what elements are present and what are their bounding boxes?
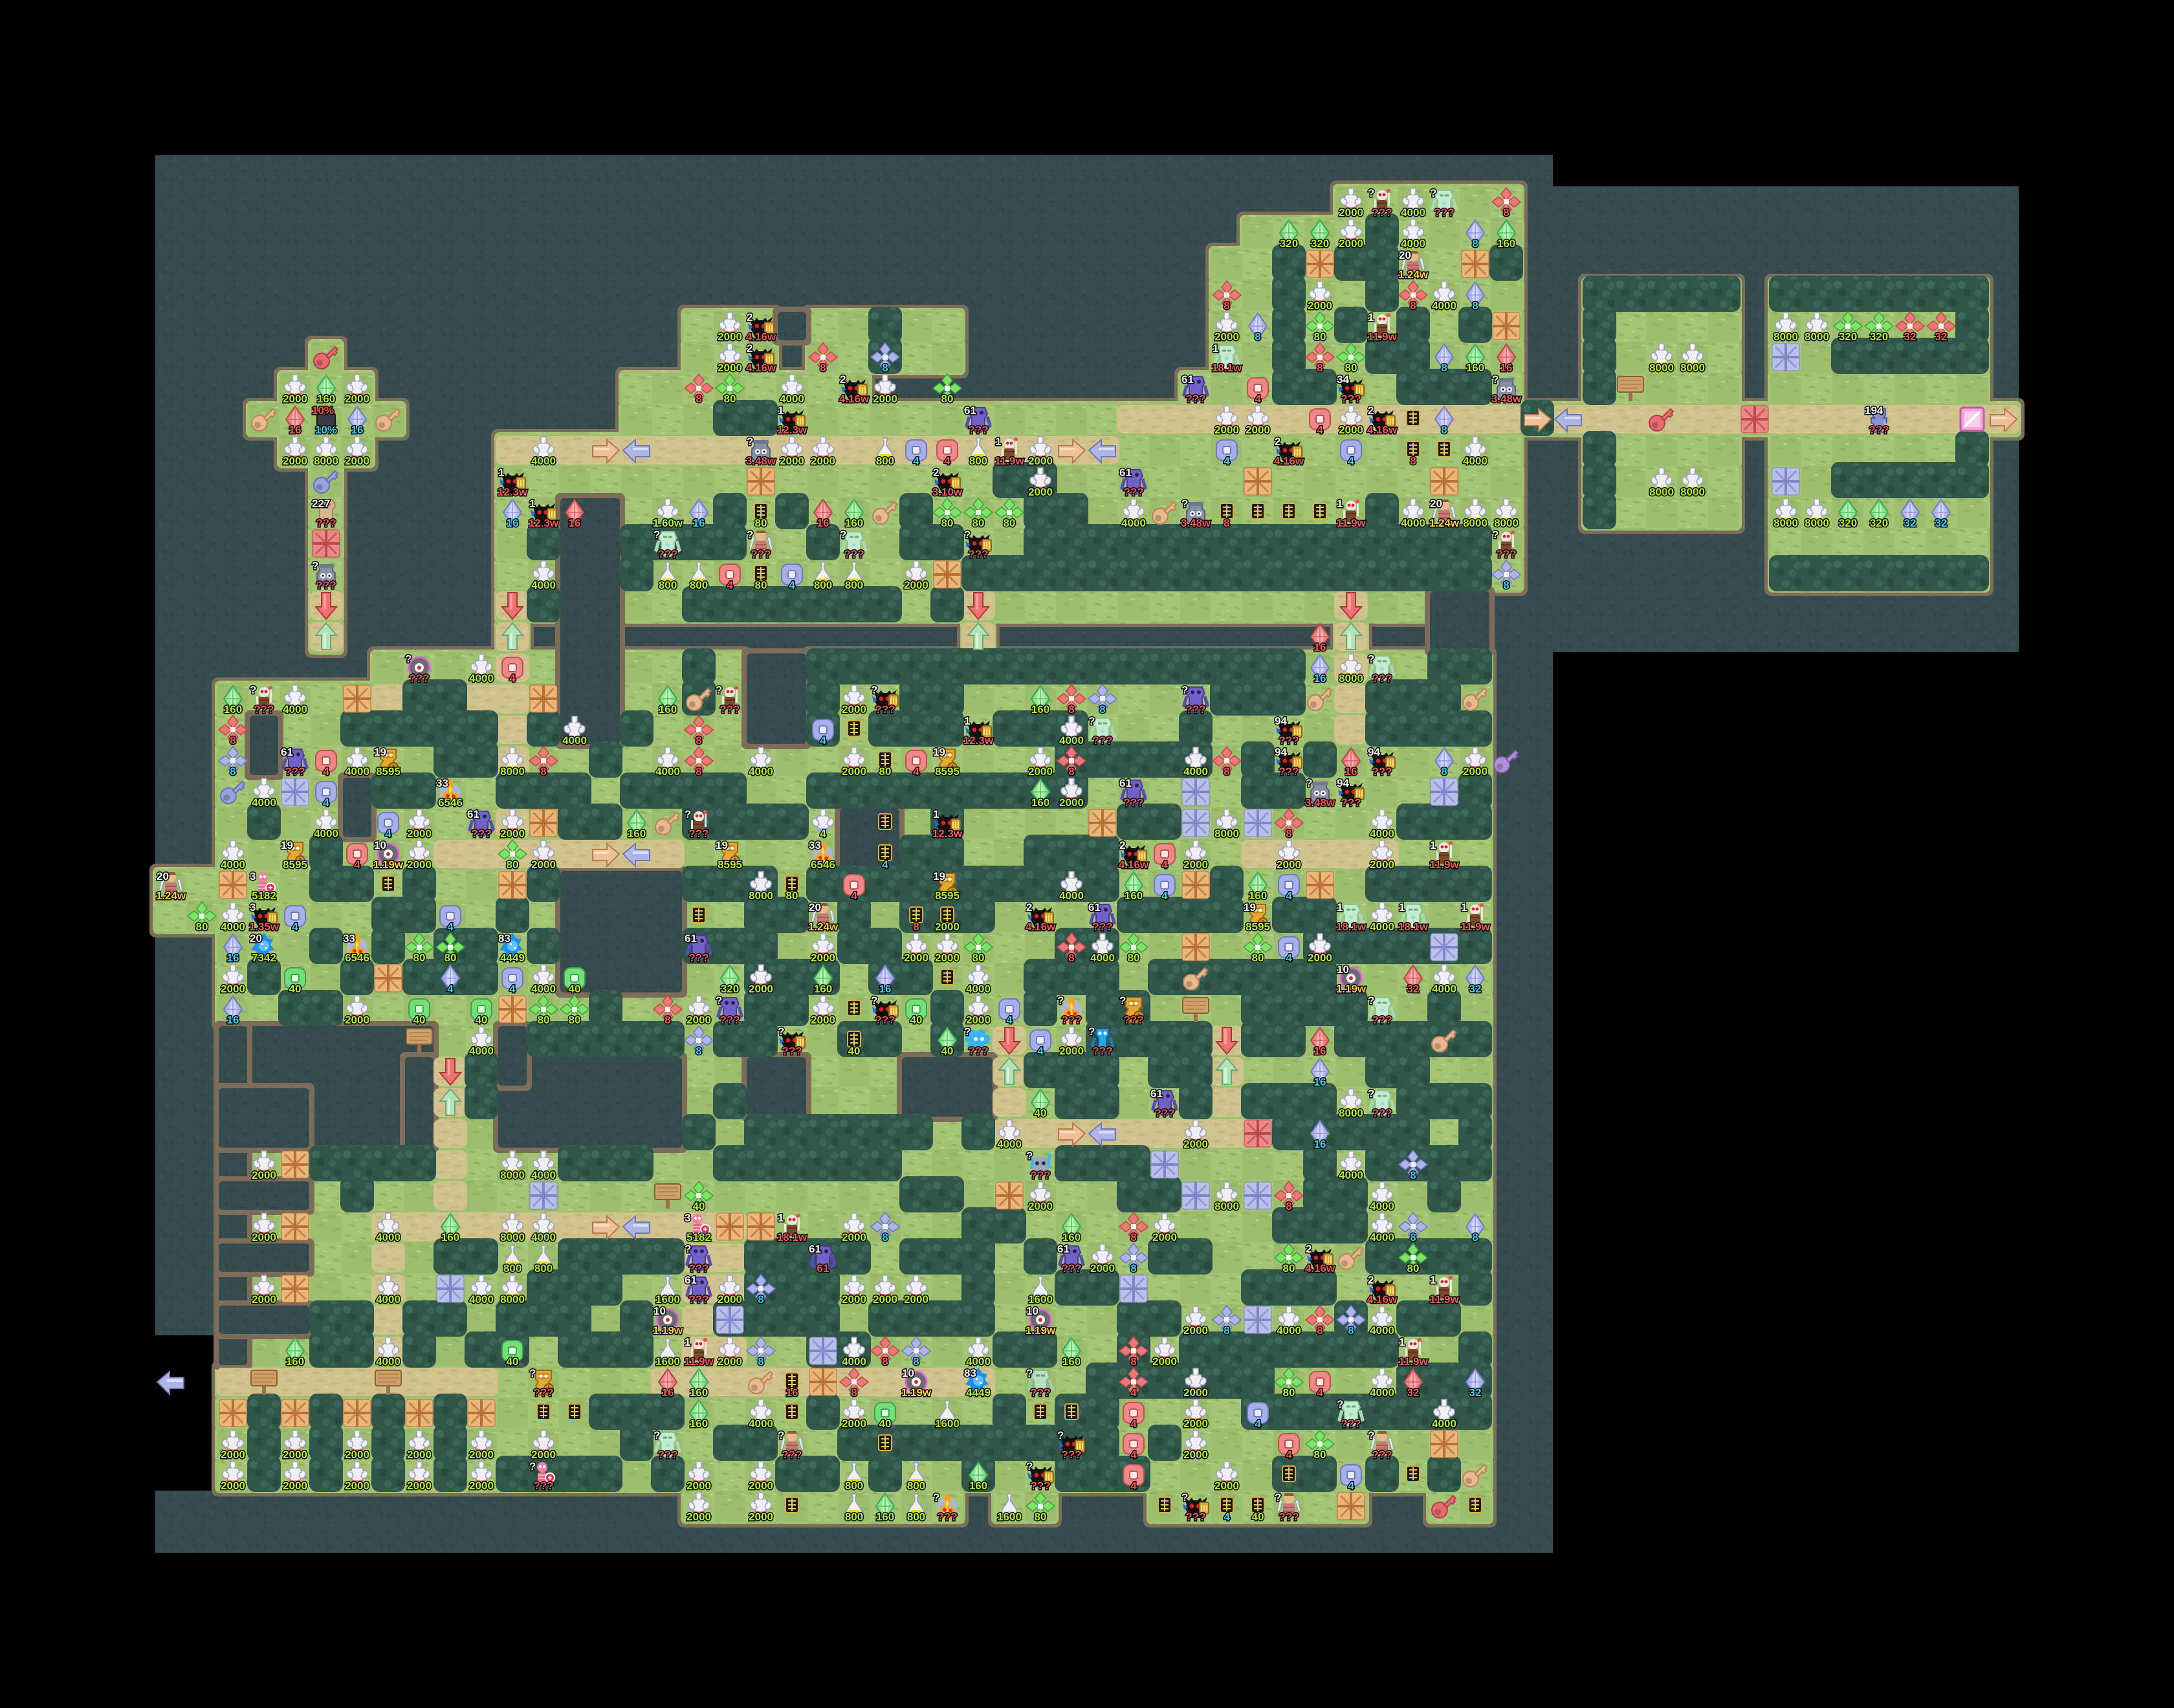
svg-text:?: ?: [1368, 187, 1374, 199]
svg-text:8595: 8595: [376, 765, 401, 778]
svg-text:8: 8: [758, 1293, 763, 1306]
svg-text:4: 4: [1161, 890, 1168, 902]
svg-text:???: ???: [1061, 1014, 1081, 1026]
svg-text:8: 8: [1068, 952, 1074, 964]
svg-text:4: 4: [447, 921, 454, 933]
svg-text:2000: 2000: [252, 1169, 276, 1181]
svg-text:80: 80: [1283, 1386, 1295, 1399]
svg-text:???: ???: [937, 1511, 957, 1523]
svg-text:4: 4: [1130, 1386, 1137, 1399]
svg-text:4000: 4000: [345, 765, 369, 778]
svg-text:???: ???: [1185, 393, 1205, 405]
svg-text:2000: 2000: [873, 393, 897, 405]
svg-text:8: 8: [913, 1355, 919, 1368]
svg-text:4000: 4000: [1432, 1418, 1456, 1430]
svg-text:16: 16: [289, 424, 302, 436]
svg-text:2000: 2000: [686, 1511, 711, 1523]
svg-text:160: 160: [441, 1231, 459, 1243]
svg-text:8: 8: [820, 362, 826, 374]
svg-text:83: 83: [498, 932, 511, 945]
svg-text:?: ?: [964, 1025, 971, 1038]
svg-text:???: ???: [1341, 393, 1361, 405]
svg-text:8: 8: [1503, 206, 1509, 219]
svg-text:?: ?: [747, 529, 753, 541]
svg-text:8000: 8000: [1805, 331, 1829, 343]
svg-text:4: 4: [1224, 455, 1230, 467]
svg-text:?: ?: [653, 1429, 660, 1441]
svg-text:80: 80: [196, 921, 208, 933]
svg-text:61: 61: [467, 808, 479, 820]
svg-text:32: 32: [1407, 1386, 1420, 1399]
svg-text:2000: 2000: [252, 1231, 276, 1243]
svg-text:2000: 2000: [1028, 455, 1053, 467]
svg-text:11.9w: 11.9w: [1460, 921, 1490, 933]
svg-text:2000: 2000: [221, 1449, 245, 1461]
svg-text:94: 94: [1275, 715, 1287, 727]
svg-text:4: 4: [1286, 1449, 1292, 1461]
svg-text:4000: 4000: [966, 983, 991, 995]
svg-text:8000: 8000: [314, 455, 338, 467]
svg-text:8000: 8000: [1494, 517, 1519, 529]
svg-text:???: ???: [316, 517, 336, 529]
svg-text:8: 8: [1224, 765, 1229, 778]
svg-text:8: 8: [758, 1355, 763, 1368]
svg-text:???: ???: [1372, 206, 1392, 219]
svg-text:2000: 2000: [407, 1449, 432, 1461]
svg-text:94: 94: [1275, 746, 1287, 758]
svg-text:8: 8: [1130, 1355, 1136, 1368]
svg-text:4: 4: [1348, 1480, 1354, 1492]
svg-text:???: ???: [1185, 1511, 1205, 1523]
svg-text:8000: 8000: [500, 765, 525, 778]
svg-text:4000: 4000: [531, 983, 556, 995]
svg-text:?: ?: [529, 1367, 536, 1379]
svg-text:???: ???: [409, 672, 429, 684]
svg-text:16: 16: [1314, 672, 1326, 684]
svg-text:8: 8: [1224, 300, 1229, 312]
svg-text:1.35w: 1.35w: [249, 921, 280, 933]
svg-text:160: 160: [1031, 796, 1049, 809]
svg-text:33: 33: [343, 932, 355, 945]
svg-text:11.9w: 11.9w: [994, 455, 1024, 467]
svg-text:8000: 8000: [1339, 672, 1363, 684]
svg-text:80: 80: [569, 1014, 581, 1026]
svg-text:2000: 2000: [686, 1014, 711, 1026]
svg-text:???: ???: [316, 579, 336, 591]
svg-text:18.1w: 18.1w: [777, 1231, 807, 1243]
svg-text:?: ?: [840, 529, 846, 541]
svg-text:???: ???: [751, 548, 771, 560]
svg-text:16: 16: [1314, 1138, 1326, 1150]
svg-text:???: ???: [875, 703, 895, 716]
svg-text:8000: 8000: [1773, 331, 1798, 343]
svg-text:4000: 4000: [1401, 206, 1425, 219]
svg-text:2000: 2000: [283, 1480, 307, 1492]
svg-text:80: 80: [941, 517, 954, 529]
svg-text:???: ???: [968, 1045, 988, 1057]
svg-text:???: ???: [1123, 1014, 1143, 1026]
svg-text:160: 160: [876, 1511, 894, 1523]
svg-text:???: ???: [1092, 921, 1112, 933]
svg-text:4.16w: 4.16w: [1367, 1293, 1398, 1306]
svg-text:1: 1: [1213, 342, 1218, 355]
svg-text:6546: 6546: [345, 952, 369, 964]
svg-text:4000: 4000: [1183, 765, 1208, 778]
svg-text:2000: 2000: [1183, 1324, 1208, 1337]
svg-text:320: 320: [1280, 237, 1298, 250]
svg-text:8: 8: [1472, 1231, 1478, 1243]
svg-text:1: 1: [778, 1212, 784, 1224]
svg-text:1: 1: [995, 435, 1001, 448]
svg-text:3: 3: [685, 1212, 690, 1224]
svg-text:?: ?: [1181, 1491, 1188, 1504]
svg-text:???: ???: [1185, 703, 1205, 716]
svg-text:1: 1: [529, 498, 535, 510]
svg-text:16: 16: [569, 517, 581, 529]
svg-text:???: ???: [1030, 1169, 1050, 1181]
svg-text:8000: 8000: [500, 1293, 525, 1306]
svg-text:8: 8: [1410, 455, 1416, 467]
svg-text:?: ?: [1026, 1460, 1033, 1473]
svg-text:4: 4: [1006, 1014, 1013, 1026]
svg-text:61: 61: [1119, 777, 1132, 789]
svg-text:320: 320: [721, 983, 739, 995]
svg-text:12.3w: 12.3w: [777, 424, 807, 436]
svg-text:8: 8: [851, 1386, 857, 1399]
svg-text:4000: 4000: [283, 703, 307, 716]
svg-text:???: ???: [688, 952, 708, 964]
svg-text:80: 80: [755, 517, 767, 529]
svg-text:4000: 4000: [531, 455, 556, 467]
svg-text:???: ???: [688, 827, 708, 840]
svg-text:2000: 2000: [904, 952, 928, 964]
svg-text:19: 19: [933, 870, 945, 882]
svg-text:1: 1: [933, 808, 939, 820]
svg-text:???: ???: [968, 424, 988, 436]
svg-text:4000: 4000: [1463, 455, 1488, 467]
svg-text:4: 4: [820, 734, 826, 747]
svg-text:2000: 2000: [283, 1449, 307, 1461]
svg-text:8: 8: [1348, 1324, 1354, 1337]
svg-text:2000: 2000: [1246, 424, 1270, 436]
svg-text:34: 34: [1337, 373, 1349, 386]
svg-text:16: 16: [1314, 1076, 1326, 1088]
svg-text:2000: 2000: [1463, 765, 1488, 778]
svg-text:4: 4: [1130, 1480, 1137, 1492]
svg-text:4000: 4000: [655, 765, 680, 778]
svg-text:4: 4: [851, 890, 857, 902]
svg-text:1: 1: [1430, 839, 1436, 851]
svg-text:80: 80: [786, 890, 798, 902]
svg-text:8000: 8000: [1680, 362, 1705, 374]
svg-text:2000: 2000: [749, 1511, 773, 1523]
svg-text:4000: 4000: [1059, 734, 1084, 747]
svg-text:32: 32: [1469, 1386, 1482, 1399]
svg-text:19: 19: [374, 746, 386, 758]
svg-text:?: ?: [716, 684, 722, 696]
svg-text:10: 10: [902, 1367, 914, 1379]
svg-text:19: 19: [716, 839, 728, 851]
svg-text:?: ?: [871, 994, 877, 1007]
svg-text:8: 8: [1317, 362, 1323, 374]
svg-text:4.16w: 4.16w: [1119, 859, 1149, 871]
svg-text:???: ???: [1372, 672, 1392, 684]
svg-text:???: ???: [1123, 796, 1143, 809]
svg-text:2000: 2000: [1214, 331, 1239, 343]
svg-text:7342: 7342: [252, 952, 276, 964]
svg-text:160: 160: [628, 827, 646, 840]
svg-text:61: 61: [1057, 1243, 1070, 1255]
svg-text:8595: 8595: [935, 890, 960, 902]
svg-text:20: 20: [1399, 249, 1411, 261]
svg-text:61: 61: [809, 1243, 821, 1255]
svg-text:18.1w: 18.1w: [1398, 921, 1429, 933]
svg-text:80: 80: [507, 859, 519, 871]
svg-text:40: 40: [693, 1200, 705, 1212]
svg-text:4: 4: [1286, 890, 1292, 902]
svg-text:8000: 8000: [1680, 486, 1705, 498]
svg-text:3: 3: [250, 901, 256, 914]
svg-text:2: 2: [933, 466, 939, 479]
svg-text:4000: 4000: [1370, 1231, 1394, 1243]
svg-text:2000: 2000: [1183, 1386, 1208, 1399]
svg-text:2000: 2000: [1214, 1480, 1239, 1492]
svg-text:1: 1: [498, 466, 504, 479]
svg-text:???: ???: [688, 1262, 708, 1275]
svg-text:?: ?: [1181, 684, 1188, 696]
svg-text:8: 8: [696, 734, 701, 747]
svg-text:2000: 2000: [718, 362, 742, 374]
svg-text:4: 4: [727, 579, 733, 591]
svg-text:8000: 8000: [1805, 517, 1829, 529]
svg-text:1: 1: [1399, 1336, 1405, 1348]
svg-text:8000: 8000: [749, 890, 773, 902]
svg-text:2000: 2000: [904, 579, 928, 591]
svg-text:4.16w: 4.16w: [1274, 455, 1304, 467]
svg-text:40: 40: [1252, 1511, 1264, 1523]
svg-text:8: 8: [1410, 300, 1416, 312]
svg-text:800: 800: [845, 1511, 863, 1523]
svg-text:1.24w: 1.24w: [156, 890, 186, 902]
svg-text:160: 160: [814, 983, 832, 995]
svg-text:4: 4: [1286, 952, 1292, 964]
svg-text:4: 4: [509, 672, 516, 684]
svg-text:61: 61: [1150, 1088, 1163, 1100]
svg-text:2000: 2000: [842, 703, 866, 716]
svg-text:?: ?: [1492, 373, 1499, 386]
svg-text:320: 320: [1870, 517, 1888, 529]
svg-text:2000: 2000: [1370, 859, 1394, 871]
svg-text:2: 2: [840, 373, 846, 386]
svg-text:4000: 4000: [1401, 517, 1425, 529]
svg-text:2000: 2000: [1339, 424, 1363, 436]
svg-text:?: ?: [1119, 994, 1126, 1007]
svg-text:2000: 2000: [1028, 1200, 1053, 1212]
svg-text:?: ?: [1368, 1429, 1374, 1441]
svg-text:8000: 8000: [1463, 517, 1488, 529]
svg-text:1600: 1600: [997, 1511, 1022, 1523]
svg-text:8: 8: [1224, 1324, 1229, 1337]
svg-text:12.3w: 12.3w: [963, 734, 994, 747]
svg-text:4000: 4000: [780, 393, 804, 405]
svg-text:194: 194: [1865, 404, 1883, 417]
svg-text:160: 160: [969, 1480, 987, 1492]
svg-text:?: ?: [778, 1429, 784, 1441]
svg-text:32: 32: [1904, 517, 1916, 529]
svg-text:4: 4: [1348, 455, 1354, 467]
svg-text:61: 61: [685, 1274, 697, 1286]
svg-text:8: 8: [1472, 300, 1478, 312]
svg-text:2: 2: [747, 311, 752, 323]
svg-text:4: 4: [882, 859, 888, 871]
svg-text:16: 16: [693, 517, 705, 529]
svg-text:8: 8: [1317, 1324, 1323, 1337]
svg-text:?: ?: [1181, 498, 1188, 510]
svg-text:8595: 8595: [283, 859, 307, 871]
svg-text:???: ???: [1279, 765, 1299, 778]
svg-text:2000: 2000: [749, 983, 773, 995]
svg-text:4000: 4000: [469, 1045, 494, 1057]
svg-text:8000: 8000: [500, 1169, 525, 1181]
svg-text:3.48w: 3.48w: [1491, 393, 1522, 405]
svg-text:1.19w: 1.19w: [1026, 1324, 1056, 1337]
svg-text:???: ???: [1372, 1449, 1392, 1461]
svg-text:80: 80: [413, 952, 426, 964]
svg-text:???: ???: [844, 548, 864, 560]
svg-text:16: 16: [1500, 362, 1513, 374]
svg-text:40: 40: [569, 983, 581, 995]
svg-text:2000: 2000: [1214, 424, 1239, 436]
svg-text:40: 40: [413, 1014, 426, 1026]
svg-text:???: ???: [1496, 548, 1516, 560]
svg-text:4: 4: [385, 827, 391, 840]
svg-text:???: ???: [657, 1449, 677, 1461]
svg-text:???: ???: [1279, 734, 1299, 747]
svg-text:1.24w: 1.24w: [1398, 268, 1429, 281]
svg-text:4000: 4000: [842, 1355, 866, 1368]
svg-text:8595: 8595: [718, 859, 742, 871]
svg-text:???: ???: [1123, 486, 1143, 498]
svg-text:2000: 2000: [1308, 300, 1332, 312]
svg-text:4: 4: [323, 796, 329, 809]
svg-text:4000: 4000: [469, 672, 494, 684]
svg-text:4.16w: 4.16w: [1026, 921, 1056, 933]
svg-text:40: 40: [476, 1014, 488, 1026]
svg-text:4: 4: [1161, 859, 1168, 871]
svg-text:2000: 2000: [780, 455, 804, 467]
svg-text:80: 80: [1407, 1262, 1420, 1275]
svg-text:8: 8: [1130, 1262, 1136, 1275]
svg-text:160: 160: [224, 703, 242, 716]
svg-text:4.16w: 4.16w: [1367, 424, 1398, 436]
svg-text:4000: 4000: [1432, 300, 1456, 312]
svg-text:33: 33: [809, 839, 821, 851]
svg-text:3.48w: 3.48w: [746, 455, 776, 467]
svg-text:2000: 2000: [283, 455, 307, 467]
svg-text:4000: 4000: [1277, 1324, 1301, 1337]
svg-text:8: 8: [1130, 1231, 1136, 1243]
svg-text:4: 4: [1255, 393, 1261, 405]
svg-text:4000: 4000: [221, 921, 245, 933]
svg-text:160: 160: [317, 393, 335, 405]
svg-text:32: 32: [1935, 331, 1948, 343]
svg-text:8: 8: [1068, 703, 1074, 716]
svg-text:8: 8: [696, 393, 701, 405]
svg-text:8000: 8000: [1649, 486, 1674, 498]
svg-text:???: ???: [533, 1386, 553, 1399]
svg-text:10: 10: [653, 1305, 666, 1317]
svg-text:80: 80: [972, 952, 985, 964]
svg-text:80: 80: [445, 952, 457, 964]
svg-text:2000: 2000: [749, 1480, 773, 1492]
svg-text:20: 20: [157, 870, 169, 882]
svg-text:83: 83: [964, 1367, 976, 1379]
svg-text:20: 20: [809, 901, 821, 914]
svg-text:2000: 2000: [221, 1480, 245, 1492]
svg-text:4000: 4000: [997, 1138, 1022, 1150]
svg-text:8: 8: [1286, 1200, 1291, 1212]
svg-text:11.9w: 11.9w: [1398, 1355, 1428, 1368]
svg-text:?: ?: [1026, 1150, 1033, 1162]
svg-text:19: 19: [933, 746, 945, 758]
svg-text:20: 20: [250, 932, 262, 945]
svg-text:2000: 2000: [966, 1014, 991, 1026]
svg-text:16: 16: [1314, 641, 1326, 653]
svg-text:2000: 2000: [407, 859, 432, 871]
svg-text:?: ?: [1337, 1398, 1343, 1410]
svg-text:8: 8: [1286, 827, 1291, 840]
svg-text:80: 80: [1128, 952, 1140, 964]
svg-text:33: 33: [436, 777, 448, 789]
svg-text:4000: 4000: [1370, 1324, 1394, 1337]
svg-text:8: 8: [696, 1045, 701, 1057]
svg-text:1.19w: 1.19w: [1336, 983, 1367, 995]
svg-text:4: 4: [1255, 1418, 1261, 1430]
svg-text:160: 160: [690, 1386, 708, 1399]
svg-text:8000: 8000: [1773, 517, 1798, 529]
svg-text:8: 8: [664, 1014, 670, 1026]
svg-text:2000: 2000: [531, 1449, 556, 1461]
svg-text:???: ???: [968, 548, 988, 560]
svg-text:???: ???: [782, 1449, 802, 1461]
svg-text:32: 32: [1904, 331, 1916, 343]
svg-text:???: ???: [1372, 1014, 1392, 1026]
svg-text:2: 2: [747, 342, 752, 355]
svg-text:2000: 2000: [345, 393, 369, 405]
svg-text:2000: 2000: [1183, 859, 1208, 871]
svg-text:8000: 8000: [1649, 362, 1674, 374]
svg-text:2000: 2000: [718, 331, 742, 343]
svg-text:4: 4: [1130, 1449, 1137, 1461]
svg-text:40: 40: [941, 1045, 954, 1057]
svg-text:?: ?: [1492, 529, 1499, 541]
svg-text:2000: 2000: [811, 455, 835, 467]
svg-text:???: ???: [1434, 206, 1454, 219]
svg-text:80: 80: [972, 517, 985, 529]
svg-text:2000: 2000: [407, 827, 432, 840]
svg-text:?: ?: [964, 529, 971, 541]
svg-text:10%: 10%: [315, 424, 337, 436]
svg-text:?: ?: [250, 684, 256, 696]
svg-text:2: 2: [1368, 1274, 1374, 1286]
svg-text:???: ???: [1030, 1386, 1050, 1399]
svg-text:40: 40: [289, 983, 302, 995]
svg-text:16: 16: [351, 424, 364, 436]
svg-text:8: 8: [1410, 1169, 1416, 1181]
svg-text:4000: 4000: [1059, 890, 1084, 902]
svg-text:2000: 2000: [252, 1293, 276, 1306]
svg-text:4000: 4000: [1370, 1200, 1394, 1212]
